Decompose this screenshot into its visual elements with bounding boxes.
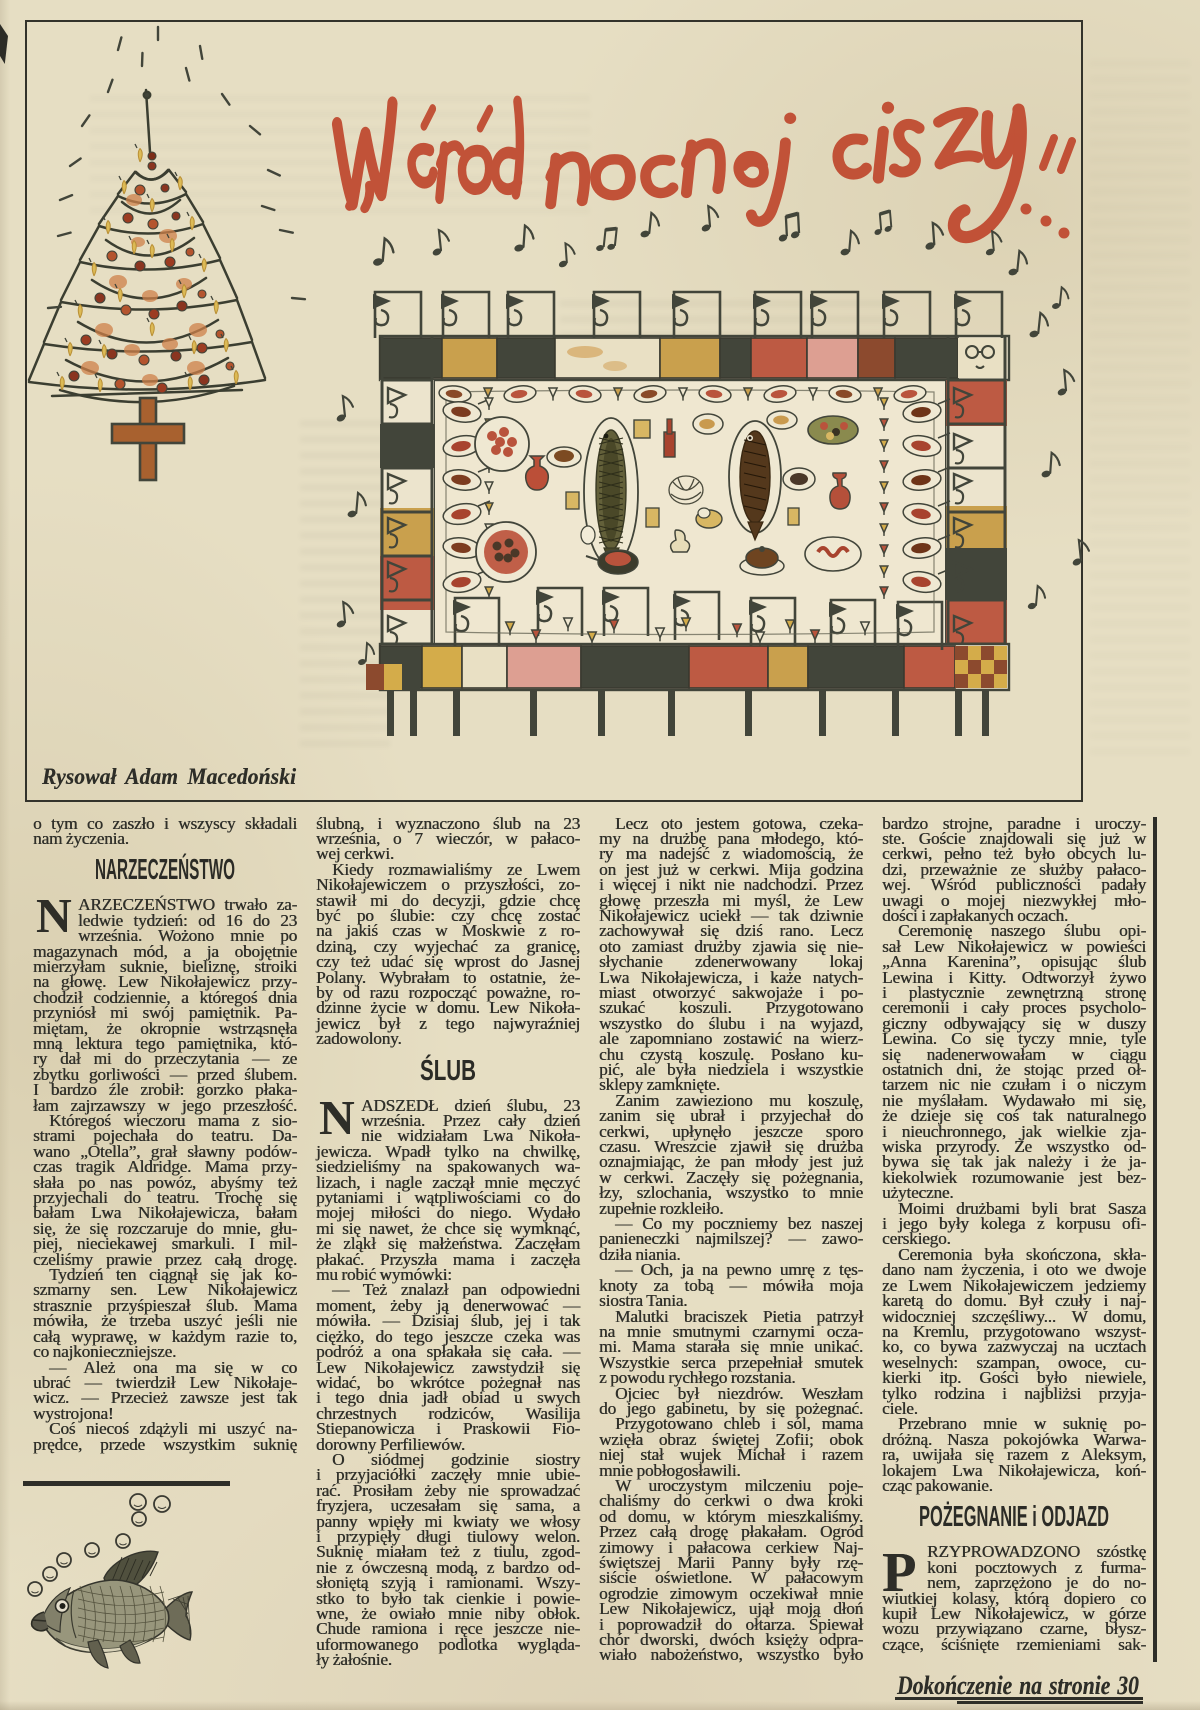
svg-text:NARZECZEŃSTWO: NARZECZEŃSTWO (95, 852, 235, 886)
svg-text:POŻEGNANIE i ODJAZD: POŻEGNANIE i ODJAZD (919, 1501, 1109, 1533)
svg-text:ŚLUB: ŚLUB (420, 1053, 476, 1087)
